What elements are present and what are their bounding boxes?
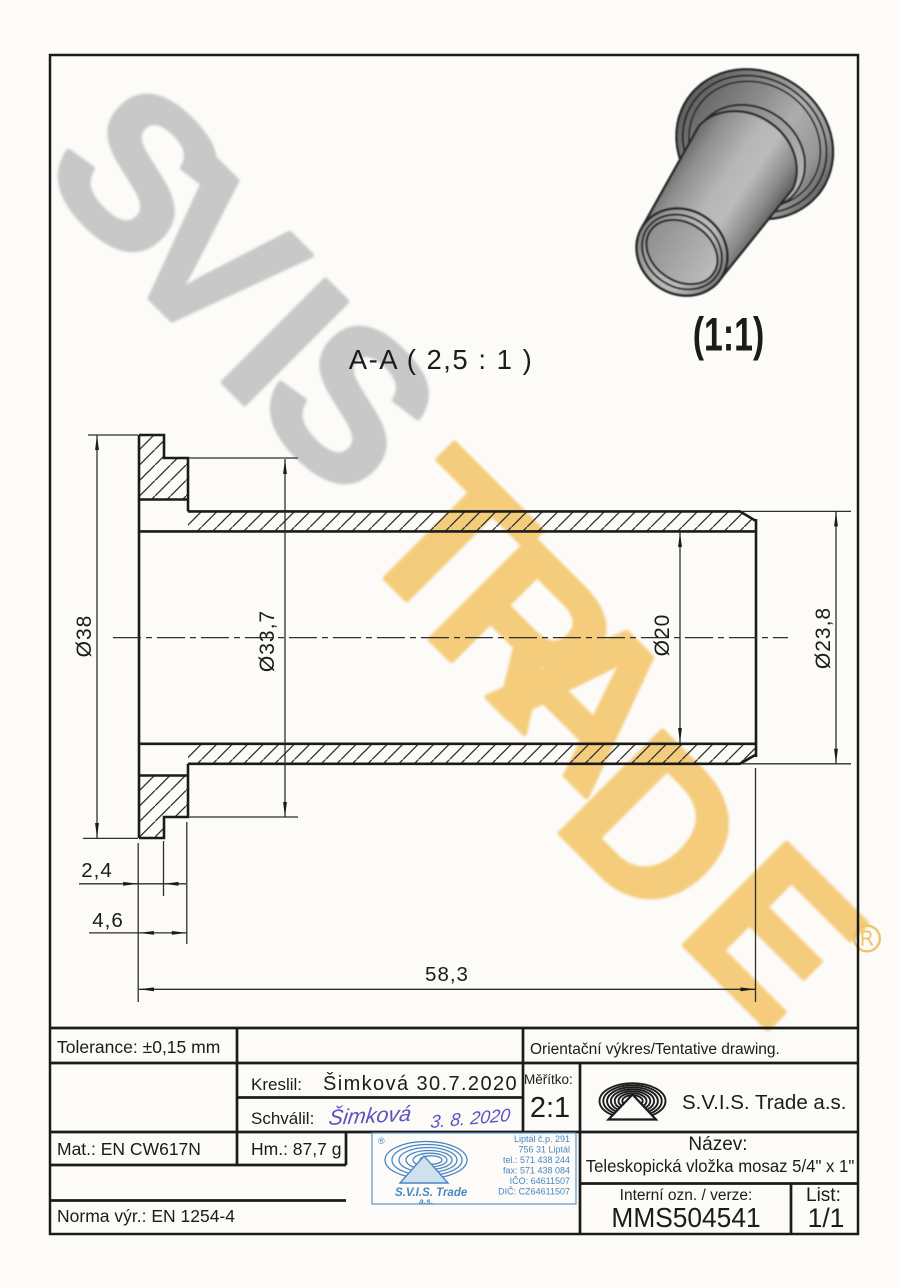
svg-text:DIČ: CZ64611507: DIČ: CZ64611507 bbox=[498, 1187, 570, 1197]
svg-text:S.V.I.S. Trade a.s.: S.V.I.S. Trade a.s. bbox=[682, 1091, 846, 1114]
svg-text:Norma výr.: EN 1254-4: Norma výr.: EN 1254-4 bbox=[57, 1206, 235, 1226]
svg-text:®: ® bbox=[378, 1136, 385, 1146]
svg-text:Orientační výkres/Tentative dr: Orientační výkres/Tentative drawing. bbox=[530, 1041, 780, 1058]
svg-text:(1:1): (1:1) bbox=[693, 308, 764, 361]
svg-text:tel.: 571 438 244: tel.: 571 438 244 bbox=[503, 1155, 570, 1165]
svg-text:A-A ( 2,5 : 1 ): A-A ( 2,5 : 1 ) bbox=[349, 344, 534, 375]
svg-text:Liptál č.p. 291: Liptál č.p. 291 bbox=[514, 1134, 570, 1144]
svg-text:fax: 571 438 084: fax: 571 438 084 bbox=[503, 1166, 570, 1176]
svg-text:Kreslil:: Kreslil: bbox=[251, 1075, 302, 1094]
svg-text:Schválil:: Schválil: bbox=[251, 1109, 314, 1128]
svg-text:a.s.: a.s. bbox=[419, 1196, 433, 1206]
svg-text:2,4: 2,4 bbox=[81, 859, 113, 882]
svg-text:MMS504541: MMS504541 bbox=[611, 1201, 760, 1233]
svg-text:Ø33,7: Ø33,7 bbox=[256, 610, 279, 672]
svg-text:58,3: 58,3 bbox=[425, 963, 469, 986]
svg-text:Mat.: EN CW617N: Mat.: EN CW617N bbox=[57, 1139, 201, 1159]
svg-text:Šimková: Šimková bbox=[327, 1101, 412, 1130]
svg-text:Ø20: Ø20 bbox=[651, 614, 674, 657]
svg-text:4,6: 4,6 bbox=[92, 909, 124, 932]
svg-text:Tolerance: ±0,15 mm: Tolerance: ±0,15 mm bbox=[57, 1037, 220, 1057]
svg-text:Ø38: Ø38 bbox=[73, 615, 96, 658]
svg-text:Ø23,8: Ø23,8 bbox=[812, 607, 835, 669]
svg-text:Měřítko:: Měřítko: bbox=[524, 1072, 573, 1087]
svg-text:Teleskopická vložka mosaz 5/4": Teleskopická vložka mosaz 5/4" x 1" bbox=[586, 1155, 855, 1176]
svg-text:756 31 Liptál: 756 31 Liptál bbox=[518, 1145, 570, 1155]
svg-text:2:1: 2:1 bbox=[530, 1092, 570, 1124]
svg-text:Šimková 30.7.2020: Šimková 30.7.2020 bbox=[323, 1072, 518, 1095]
svg-text:IČO: 64611507: IČO: 64611507 bbox=[510, 1176, 570, 1186]
svg-text:Hm.: 87,7 g: Hm.: 87,7 g bbox=[251, 1139, 341, 1159]
svg-text:Název:: Název: bbox=[688, 1134, 747, 1155]
svg-text:1/1: 1/1 bbox=[808, 1203, 845, 1233]
